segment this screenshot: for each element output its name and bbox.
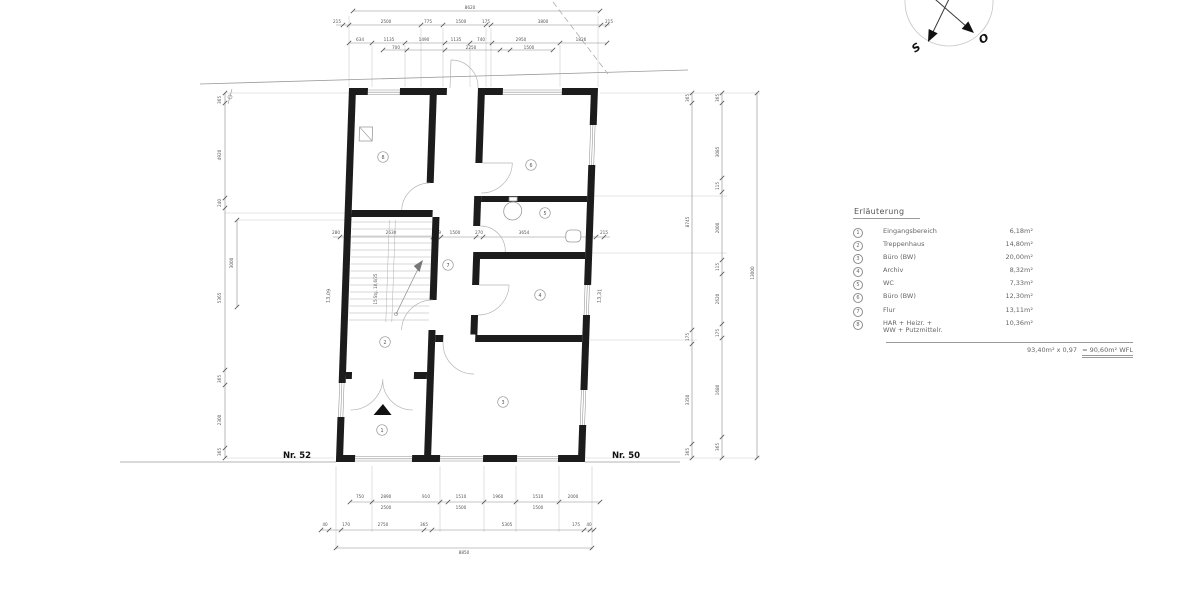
fixtures [356,127,585,242]
dim-label: 3800 [538,19,549,24]
stairs [349,220,433,322]
legend-item-number: 1 [853,228,883,238]
legend-item-area: 6,18m² [985,228,1033,238]
legend-item-number: 5 [853,280,883,290]
dim-label: 365 [685,94,690,102]
boundary-marker [228,89,232,104]
legend-item-area: 10,36m² [985,320,1033,335]
legend-item-area: 20,00m² [985,254,1033,264]
dim-label: 1500 [450,230,461,235]
site-boundary-line [200,70,688,84]
legend-item-number: 7 [853,307,883,317]
compass-arrow-south [928,29,938,42]
dim-label: 365 [217,448,222,456]
dim-label: 775 [424,19,432,24]
dim-label: 365 [217,375,222,383]
interior-walls [343,95,591,455]
legend-items: 1Eingangsbereich6,18m²2Treppenhaus14,80m… [853,228,1133,335]
house-number-right: Nr. 50 [612,451,640,461]
dim-label: 3654 [519,230,530,235]
legend-row: 4Archiv8,32m² [853,267,1133,277]
legend-item-number: 6 [853,293,883,303]
dim-label: 1135 [451,37,462,42]
dim-label: 280 [332,230,340,235]
dim-label: 170 [342,522,350,527]
legend-item-label: Eingangsbereich [883,228,985,238]
dim-label: 40 [322,522,328,527]
legend-title: Erläuterung [853,207,920,219]
dim-label: 2750 [378,522,389,527]
dim-label: 365 [715,94,720,102]
dim-label: 1500 [456,505,467,510]
legend-total-areas: 93,40m² x 0,97 [1027,346,1077,354]
dim-label: 175 [715,329,720,337]
dim-label: 365 [420,522,428,527]
room-number-3: 3 [501,400,504,406]
dim-label: 3000 [229,257,234,268]
compass-label-south: S [909,40,923,55]
legend-item-area: 13,11m² [985,307,1033,317]
legend-item-label: Flur [883,307,985,317]
dim-label: 1826 [576,37,587,42]
compass-axis-ew [905,0,967,27]
dim-label: 8620 [465,5,476,10]
room-number-1: 1 [380,428,383,434]
dim-label: 2950 [516,37,527,42]
dimension-layer: 8620215250077515001753800215634113514901… [120,2,760,555]
house-number-left: Nr. 52 [283,451,311,461]
dim-label: 2890 [381,494,392,499]
dim-label: 2500 [381,19,392,24]
legend-item-label: HAR + Heizr. + WW + Putzmittelr. [883,320,985,335]
dim-label: 13,09 [326,289,333,304]
legend-row: 5WC7,33m² [853,280,1133,290]
dim-label: 2300 [217,414,222,425]
dim-label: 13000 [750,266,755,280]
dim-label: 270 [475,230,483,235]
room-number-7: 7 [446,263,449,269]
dim-label: 740 [477,37,485,42]
shaft-symbol [359,127,372,141]
dim-label: 2250 [466,45,477,50]
dim-label: 1490 [419,37,430,42]
dim-label: 365 [715,443,720,451]
dim-label: 5305 [502,522,513,527]
legend-row: 1Eingangsbereich6,18m² [853,228,1133,238]
dim-label: 175 [572,522,580,527]
legend-item-number: 3 [853,254,883,264]
dim-label: 365 [217,96,222,104]
dim-label: 750 [356,494,364,499]
dim-label: 3085 [715,146,720,157]
dim-label: 175 [482,19,490,24]
building [335,60,599,463]
dim-label: 8745 [685,216,690,227]
dim-label: 40 [586,522,592,527]
legend-item-label: WC [883,280,985,290]
compass: S O [905,0,993,55]
dim-label: 215 [605,19,613,24]
dim-label: 1960 [493,494,504,499]
dim-label: 4920 [217,149,222,160]
dim-label: 215 [333,19,341,24]
entrance-arrow [374,404,392,415]
legend-item-area: 7,33m² [985,280,1033,290]
legend-item-area: 14,80m² [985,241,1033,251]
legend-row: 8HAR + Heizr. + WW + Putzmittelr.10,36m² [853,320,1133,335]
floorplan-sheet: { "legend": { "title": "Erläuterung", "i… [0,0,1200,600]
room-number-6: 6 [529,163,532,169]
room-number-8: 8 [381,155,384,161]
dim-label: 1680 [715,384,720,395]
legend-panel: Erläuterung 1Eingangsbereich6,18m²2Trepp… [853,199,1133,354]
legend-item-label: Archiv [883,267,985,277]
compass-arrow-east [962,21,974,33]
legend-item-label: Büro (BW) [883,293,985,303]
dim-label: 365 [685,448,690,456]
dim-label: 175 [685,333,690,341]
dim-label: 1500 [533,505,544,510]
legend-total: 93,40m² x 0,97 = 90,60m² WFL [886,342,1133,354]
legend-row: 6Büro (BW)12,30m² [853,293,1133,303]
dim-label: 1500 [524,45,535,50]
dim-label: 3350 [685,394,690,405]
dim-label: 2620 [715,293,720,304]
compass-label-east: O [977,31,991,47]
legend-row: 3Büro (BW)20,00m² [853,254,1133,264]
dim-label: 700 [392,45,400,50]
dim-label: 2000 [568,494,579,499]
dim-label: 115 [715,263,720,271]
dim-label: 240 [217,199,222,207]
room-number-4: 4 [538,293,541,299]
dim-label: 13,31 [597,289,604,304]
legend-item-area: 8,32m² [985,267,1033,277]
legend-item-number: 2 [853,241,883,251]
room-number-5: 5 [543,211,546,217]
dim-label: 1500 [456,19,467,24]
room-number-2: 2 [383,340,386,346]
legend-row: 2Treppenhaus14,80m² [853,241,1133,251]
dim-label: 1135 [384,37,395,42]
dim-label: 2000 [715,222,720,233]
legend-row: 7Flur13,11m² [853,307,1133,317]
dim-label: 910 [422,494,430,499]
legend-item-label: Büro (BW) [883,254,985,264]
legend-item-number: 8 [853,320,883,335]
legend-item-number: 4 [853,267,883,277]
dim-label: 115 [715,182,720,190]
legend-item-area: 12,30m² [985,293,1033,303]
dim-label: 8850 [459,550,470,555]
dim-label: 1510 [533,494,544,499]
legend-item-label: Treppenhaus [883,241,985,251]
legend-total-result: = 90,60m² WFL [1082,346,1133,358]
dim-label: 5365 [217,292,222,303]
dim-label: 1510 [456,494,467,499]
dim-label: 634 [356,37,364,42]
dim-label: 215 [600,230,608,235]
dim-label: 2500 [381,505,392,510]
wc-toilet [566,230,581,242]
